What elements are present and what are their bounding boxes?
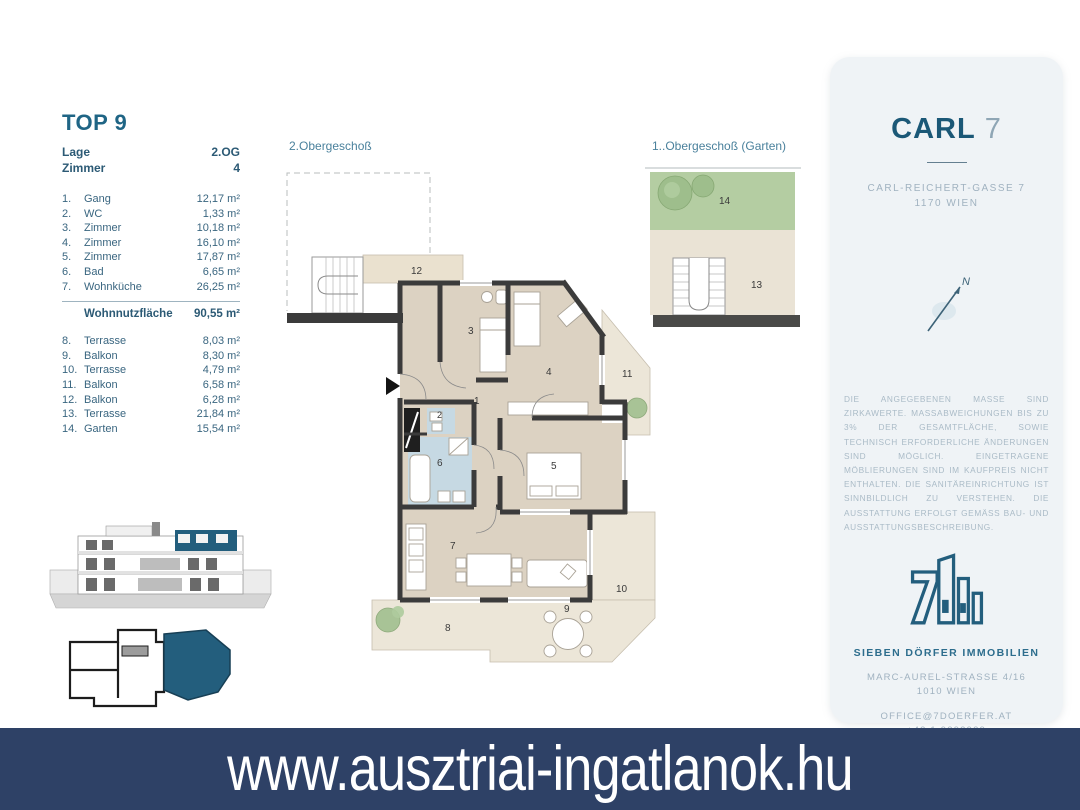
room-row: 11.Balkon6,58 m² [62, 378, 240, 393]
company-email[interactable]: OFFICE@7DOERFER.AT [830, 710, 1063, 724]
total-area-row: Wohnnutzfläche 90,55 m² [62, 308, 240, 320]
room-row: 14.Garten15,54 m² [62, 422, 240, 437]
lage-label: Lage [62, 144, 90, 160]
company-address-line2: 1010 WIEN [830, 685, 1063, 699]
project-address-line2: 1170 WIEN [830, 196, 1063, 211]
zimmer-value: 4 [233, 160, 240, 176]
compass-icon: N [912, 269, 982, 339]
garden-floor-plan: 14 13 [645, 160, 805, 335]
main-floor-plan: 1 2 3 4 5 6 7 8 9 10 11 12 [280, 150, 670, 680]
room-row: 6.Bad6,65 m² [62, 265, 240, 280]
room-row: 8.Terrasse8,03 m² [62, 334, 240, 349]
total-label: Wohnnutzfläche [62, 308, 173, 320]
garden-staircase [673, 258, 725, 315]
room-row: 1.Gang12,17 m² [62, 192, 240, 207]
room-row: 9.Balkon8,30 m² [62, 349, 240, 364]
company-logo [906, 552, 988, 628]
room-label-14: 14 [719, 196, 731, 207]
room-row: 12.Balkon6,28 m² [62, 393, 240, 408]
zimmer-label: Zimmer [62, 160, 105, 176]
room-row: 5.Zimmer17,87 m² [62, 250, 240, 265]
building-elevation [48, 510, 273, 615]
disclaimer-text: DIE ANGEGEBENEN MASSE SIND ZIRKAWERTE. M… [844, 392, 1049, 534]
room-label-4: 4 [546, 367, 552, 378]
room-label-7: 7 [450, 541, 456, 552]
list-divider [62, 301, 240, 302]
project-title: CARL 7 [830, 113, 1063, 146]
footer-website-link[interactable]: www.ausztriai-ingatlanok.hu [227, 733, 853, 805]
room-row: 7.Wohnküche26,25 m² [62, 280, 240, 295]
project-address: CARL-REICHERT-GASSE 7 1170 WIEN [830, 181, 1063, 211]
project-number: 7 [985, 113, 1002, 145]
highlighted-unit-siteplan [164, 630, 230, 700]
room-label-5: 5 [551, 461, 557, 472]
unit-location-plan [60, 620, 240, 715]
project-name: CARL [891, 113, 976, 145]
room-label-11: 11 [622, 369, 633, 380]
total-value: 90,55 m² [194, 308, 240, 320]
interior-room-list: 1.Gang12,17 m² 2.WC1,33 m² 3.Zimmer10,18… [62, 192, 240, 294]
room-label-6: 6 [437, 458, 443, 469]
room-row: 13.Terrasse21,84 m² [62, 407, 240, 422]
staircase [312, 257, 363, 313]
unit-title: TOP 9 [62, 110, 240, 136]
company-address: MARC-AUREL-STRASSE 4/16 1010 WIEN [830, 671, 1063, 699]
project-address-line1: CARL-REICHERT-GASSE 7 [830, 181, 1063, 196]
project-side-panel: CARL 7 CARL-REICHERT-GASSE 7 1170 WIEN N… [830, 57, 1063, 723]
title-divider [927, 162, 967, 163]
room-row: 2.WC1,33 m² [62, 207, 240, 222]
terrace-8-balcony-9 [372, 600, 655, 662]
room-label-13: 13 [751, 280, 763, 291]
room-label-2: 2 [437, 410, 442, 420]
outdoor-room-list: 8.Terrasse8,03 m² 9.Balkon8,30 m² 10.Ter… [62, 334, 240, 436]
company-name: SIEBEN DÖRFER IMMOBILIEN [830, 647, 1063, 659]
room-row: 3.Zimmer10,18 m² [62, 221, 240, 236]
footer-banner: www.ausztriai-ingatlanok.hu [0, 728, 1080, 810]
company-address-line1: MARC-AUREL-STRASSE 4/16 [830, 671, 1063, 685]
unit-info-panel: TOP 9 Lage 2.OG Zimmer 4 1.Gang12,17 m² … [62, 110, 240, 436]
room-label-9: 9 [564, 604, 570, 615]
lage-value: 2.OG [211, 144, 240, 160]
garden-wall [653, 315, 800, 327]
room-label-3: 3 [468, 326, 474, 337]
garden-plan-label: 1..Obergeschoß (Garten) [652, 139, 786, 153]
room-label-10: 10 [616, 584, 628, 595]
room-label-8: 8 [445, 623, 451, 634]
room-row: 4.Zimmer16,10 m² [62, 236, 240, 251]
compass-north-label: N [962, 276, 970, 288]
zimmer-row: Zimmer 4 [62, 160, 240, 176]
entrance-arrow-icon [386, 377, 400, 395]
room-label-12: 12 [411, 266, 423, 277]
room-row: 10.Terrasse4,79 m² [62, 363, 240, 378]
lage-row: Lage 2.OG [62, 144, 240, 160]
room-label-1: 1 [474, 396, 480, 407]
stairwell-wall [287, 313, 403, 323]
